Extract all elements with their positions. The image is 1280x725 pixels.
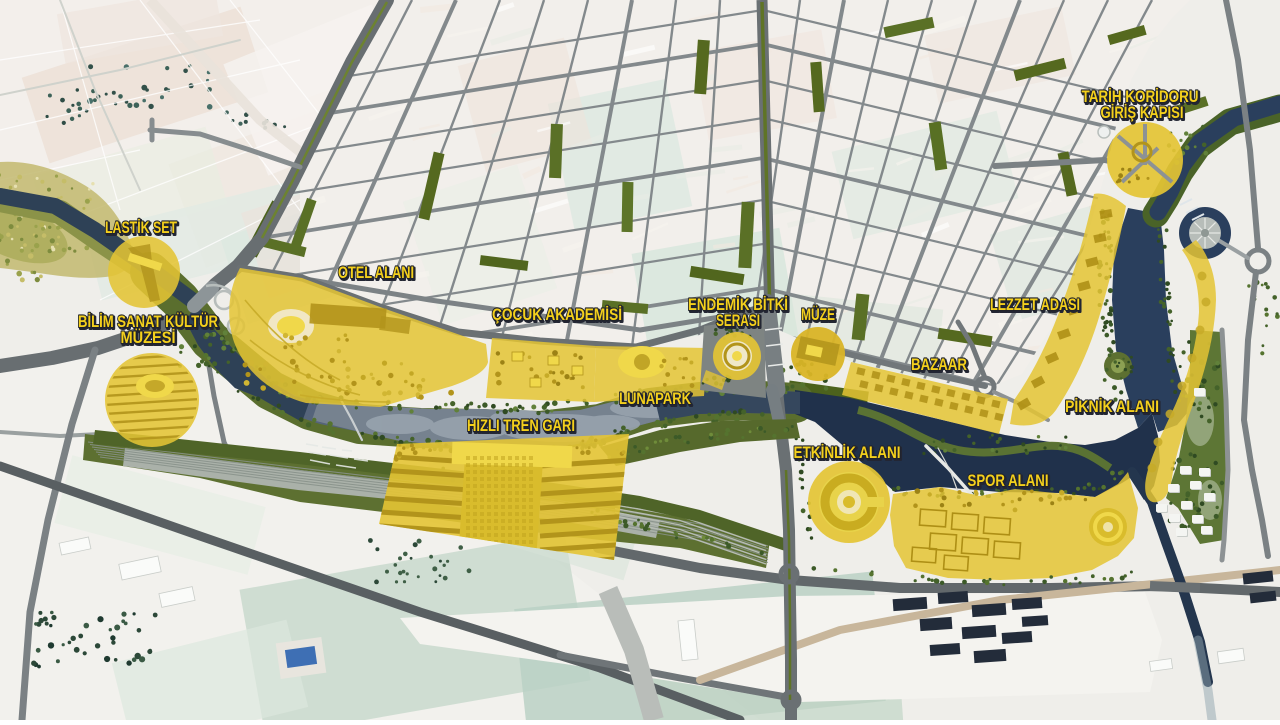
svg-text:MÜZESİ: MÜZESİ [121, 328, 176, 347]
svg-text:LUNAPARK: LUNAPARK [619, 389, 692, 408]
svg-text:OTEL ALANI: OTEL ALANI [338, 263, 414, 282]
svg-text:BAZAAR: BAZAAR [911, 355, 967, 374]
svg-text:PİKNİK ALANI: PİKNİK ALANI [1065, 397, 1159, 416]
svg-text:MÜZE: MÜZE [801, 305, 835, 324]
svg-text:SERASI: SERASI [716, 311, 760, 330]
svg-text:SPOR ALANI: SPOR ALANI [968, 471, 1049, 490]
svg-text:HIZLI TREN GARI: HIZLI TREN GARI [467, 416, 575, 435]
svg-text:LASTİK SET: LASTİK SET [105, 218, 177, 237]
svg-text:ETKİNLİK ALANI: ETKİNLİK ALANI [794, 443, 901, 462]
svg-text:GİRİŞ KAPISI: GİRİŞ KAPISI [1101, 103, 1184, 122]
svg-text:ÇOCUK AKADEMİSİ: ÇOCUK AKADEMİSİ [492, 305, 622, 324]
svg-text:LEZZET ADASI: LEZZET ADASI [990, 295, 1080, 314]
